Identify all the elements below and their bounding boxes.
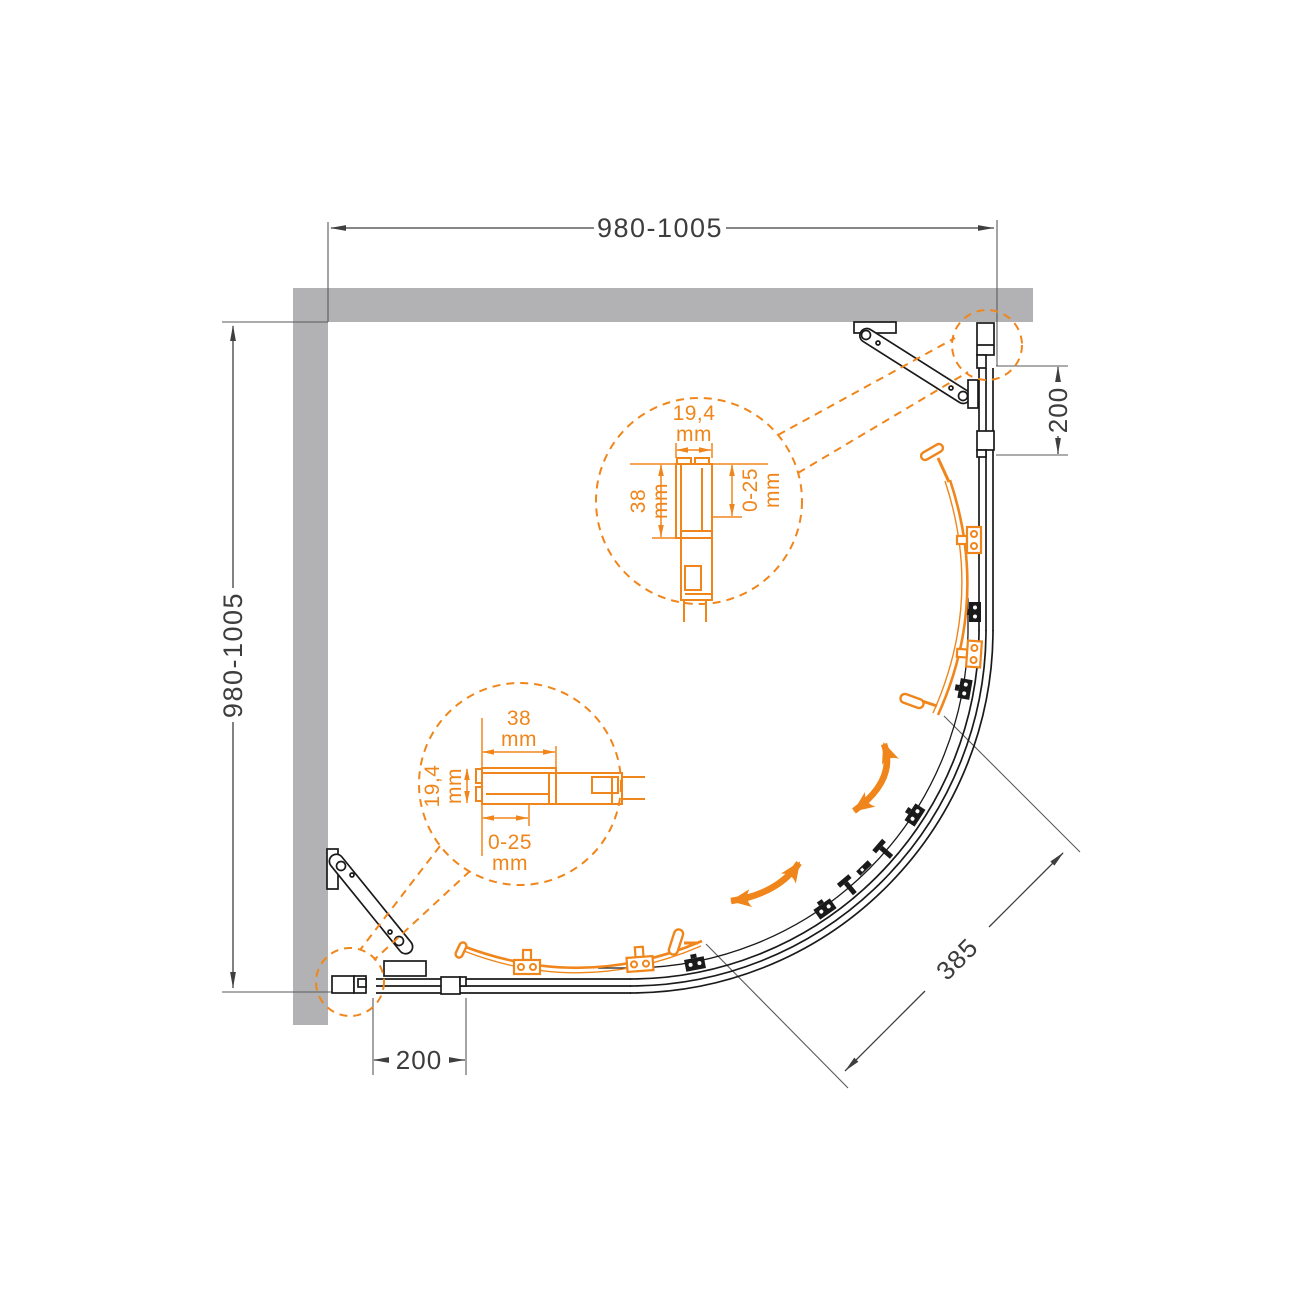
detail-top-depth-unit: mm bbox=[649, 483, 672, 519]
detail-bottom-adjust-unit: mm bbox=[492, 852, 528, 875]
detail-bottom-adjust-value: 0-25 bbox=[488, 831, 532, 854]
detail-bottom-depth-value: 38 bbox=[507, 707, 531, 730]
curved-rail-inner bbox=[630, 630, 979, 979]
wall-top bbox=[293, 288, 1033, 322]
door-slide-arrow-lower bbox=[731, 863, 799, 901]
shower-enclosure-plan-drawing: 980-1005 980-1005 200 200 385 bbox=[0, 0, 1300, 1300]
detail-bottom-width-value: 19,4 bbox=[421, 765, 444, 808]
dim-bottom-fixed-label: 200 bbox=[396, 1045, 442, 1075]
detail-bottom-dim-adjust: 0-25 mm bbox=[483, 804, 532, 875]
dim-door-opening-label: 385 bbox=[930, 932, 984, 986]
roller-carriage bbox=[514, 950, 540, 974]
door-handle bbox=[668, 928, 685, 956]
inner-guide-track bbox=[630, 630, 968, 968]
detail-top-width-unit: mm bbox=[676, 423, 712, 446]
detail-callout-bottom: 38 mm 19,4 mm 0-25 mm bbox=[419, 683, 645, 885]
curved-rail-outer bbox=[630, 630, 993, 993]
detail-callout-top: 19,4 mm 38 mm 0-25 mm bbox=[596, 398, 802, 622]
rail-clamp bbox=[953, 677, 972, 699]
door-slide-arrow-upper bbox=[854, 744, 887, 811]
dimension-bottom-fixed-200: 200 bbox=[373, 998, 466, 1075]
detail-top-adjust-value: 0-25 bbox=[739, 468, 762, 512]
detail-top-width-value: 19,4 bbox=[673, 402, 716, 425]
detail-bottom-width-unit: mm bbox=[443, 768, 466, 804]
detail-bottom-dim-width: 19,4 mm bbox=[421, 765, 467, 808]
profile-section-top bbox=[676, 458, 712, 622]
dimension-right-fixed-200: 200 bbox=[996, 366, 1073, 455]
detail-top-dim-adjust: 0-25 mm bbox=[712, 465, 784, 517]
wall-profile-bottom-left bbox=[332, 976, 366, 993]
detail-top-adjust-unit: mm bbox=[761, 472, 784, 508]
wall-profile-top-right bbox=[977, 323, 994, 368]
door-handle bbox=[899, 693, 925, 710]
door-end-cap bbox=[454, 941, 467, 958]
connector-block-bottom bbox=[441, 977, 466, 994]
rail-clamp bbox=[811, 895, 837, 920]
door-slide-arrows bbox=[731, 744, 887, 901]
dim-right-fixed-label: 200 bbox=[1043, 387, 1073, 433]
dim-top-width-label: 980-1005 bbox=[597, 213, 723, 243]
detail-top-dim-width: 19,4 mm bbox=[673, 402, 716, 458]
detail-bottom-dim-depth: 38 mm bbox=[483, 707, 556, 768]
sliding-door-right bbox=[899, 443, 967, 715]
technical-drawing-page: 980-1005 980-1005 200 200 385 bbox=[0, 0, 1300, 1300]
detail-top-depth-value: 38 bbox=[627, 489, 650, 513]
connector-block-right bbox=[977, 431, 994, 457]
wall-left bbox=[293, 288, 328, 1025]
rail-clamp bbox=[683, 952, 706, 972]
dimension-door-opening-385: 385 bbox=[706, 716, 1080, 1088]
roller-carriage bbox=[626, 946, 654, 972]
enclosure-frame bbox=[376, 368, 993, 993]
detail-bottom-depth-unit: mm bbox=[501, 728, 537, 751]
dim-left-depth-label: 980-1005 bbox=[218, 592, 248, 718]
detail-top-dim-depth: 38 mm bbox=[627, 465, 678, 538]
door-handle bbox=[920, 443, 945, 462]
